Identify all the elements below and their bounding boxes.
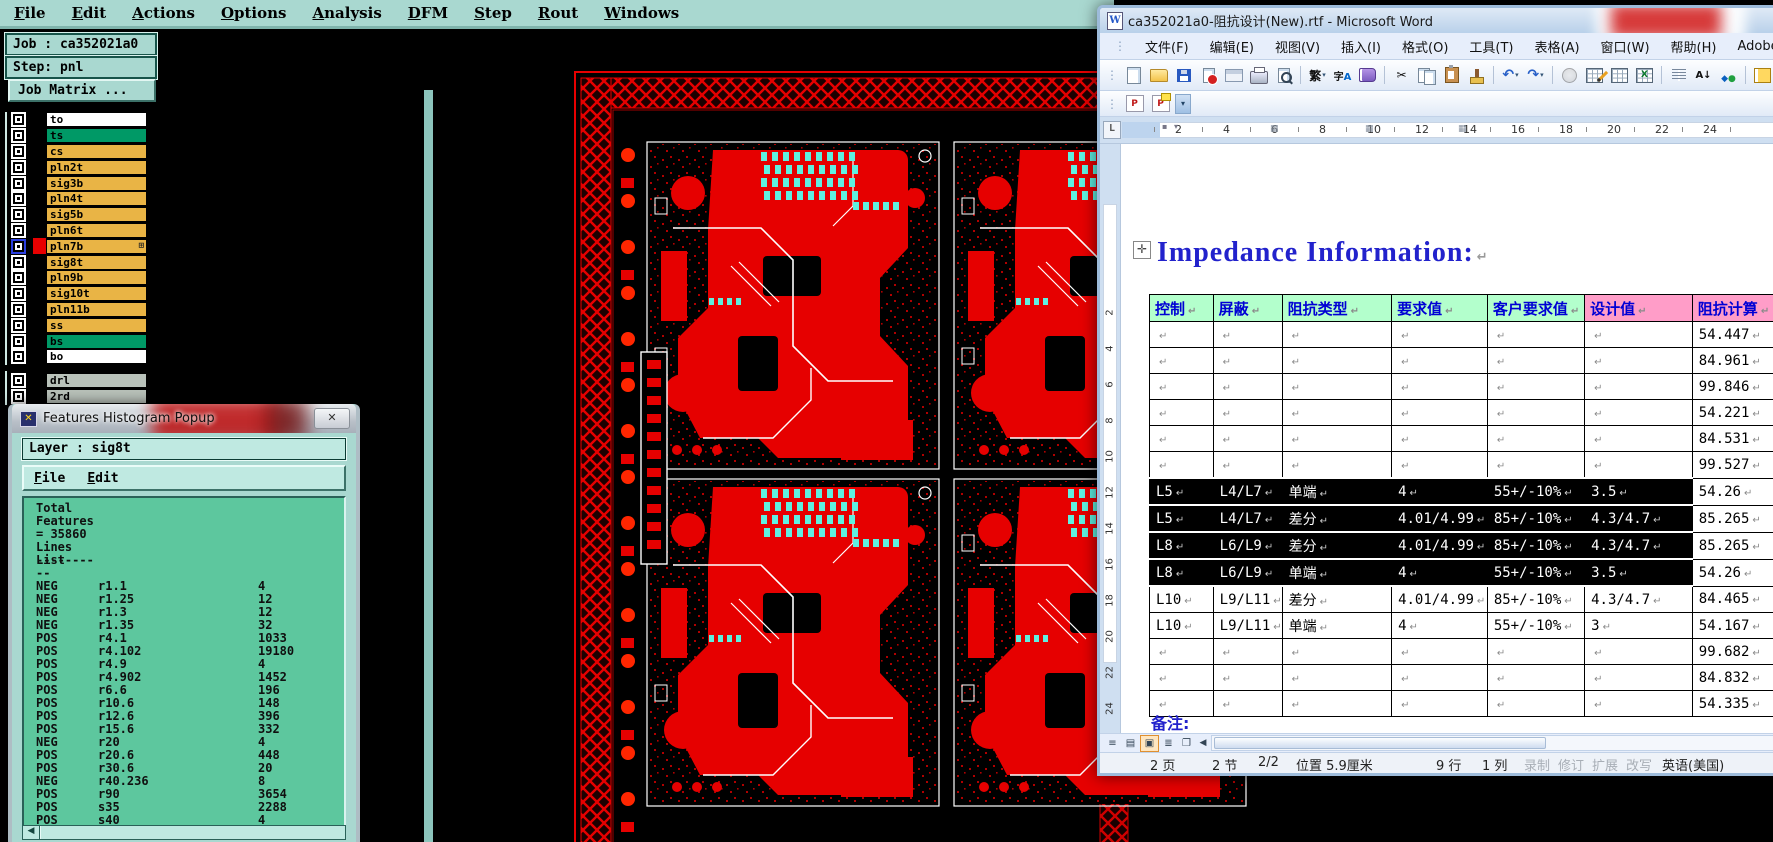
table-cell[interactable]	[1585, 322, 1693, 348]
scroll-left-icon[interactable]: ◀	[23, 826, 40, 839]
table-cell[interactable]	[1487, 374, 1584, 400]
feature-symbol: r40.236	[98, 775, 258, 788]
word-pdf-toolbar: PP▾	[1100, 91, 1773, 117]
histogram-text: ----------	[36, 554, 98, 580]
table-column-marker[interactable]: ▦	[1458, 125, 1467, 134]
hyperlink-icon[interactable]	[1558, 65, 1581, 86]
table-cell[interactable]: 99.846	[1692, 374, 1773, 400]
print-preview-icon[interactable]	[1272, 65, 1295, 86]
layer-color-swatch	[33, 389, 46, 405]
layer-name-cs[interactable]: cs	[46, 144, 147, 159]
convert-and-email-pdf-icon[interactable]: P	[1149, 93, 1172, 114]
table-row[interactable]: 99.846	[1150, 374, 1773, 400]
layer-checkbox-pln7b[interactable]	[11, 239, 26, 254]
layer-checkbox-col	[7, 317, 33, 333]
status-flag-1[interactable]: 修订	[1558, 755, 1584, 774]
ruler-tick	[1586, 127, 1587, 132]
cam-menu-actions[interactable]: Actions	[132, 4, 195, 22]
histogram-row: POSr4.9021452	[24, 671, 344, 684]
table-cell[interactable]	[1150, 665, 1214, 691]
phonetic-guide-icon[interactable]: 字A	[1331, 65, 1354, 86]
table-cell[interactable]	[1282, 639, 1391, 665]
layer-name-ts[interactable]: ts	[46, 128, 147, 143]
table-cell[interactable]: 单端	[1282, 613, 1391, 639]
convert-to-pdf-icon[interactable]: P	[1123, 93, 1146, 114]
word-menu-1[interactable]: 编辑(E)	[1206, 35, 1258, 58]
table-cell[interactable]: 4	[1392, 613, 1488, 639]
word-menu-8[interactable]: 帮助(H)	[1667, 35, 1721, 58]
impedance-table[interactable]: 控制屏蔽阻抗类型要求值客户要求值设计值阻抗计算54.44784.96199.84…	[1149, 294, 1773, 717]
table-cell[interactable]	[1487, 322, 1584, 348]
word-menu-4[interactable]: 格式(O)	[1398, 35, 1452, 58]
layer-row-pln2t[interactable]: pln2t	[7, 159, 147, 175]
layer-row-bs[interactable]: bs	[7, 333, 147, 349]
layer-checkbox-col	[7, 191, 33, 207]
layer-checkbox-col	[7, 349, 33, 365]
vruler-number: 8	[1105, 414, 1116, 428]
toolbar-options-icon[interactable]: ▾	[1175, 94, 1191, 114]
layer-checkbox-col	[7, 238, 33, 254]
table-cell[interactable]: 85.265	[1692, 532, 1773, 559]
table-cell[interactable]	[1392, 426, 1488, 452]
table-cell[interactable]: 84.832	[1692, 665, 1773, 691]
table-cell[interactable]: 3.5	[1585, 478, 1693, 505]
layer-checkbox-col	[7, 112, 33, 128]
table-row[interactable]: L5L4/L7单端455+/-10%3.554.26	[1150, 478, 1773, 505]
table-cell[interactable]: 55+/-10%	[1487, 559, 1584, 586]
print-icon[interactable]	[1247, 65, 1270, 86]
layer-checkbox-drl[interactable]	[11, 373, 26, 388]
table-cell[interactable]: 54.447	[1692, 322, 1773, 348]
table-cell[interactable]: 55+/-10%	[1487, 613, 1584, 639]
layer-name-bs[interactable]: bs	[46, 334, 147, 349]
cam-menu-step[interactable]: Step	[474, 4, 512, 22]
table-cell[interactable]	[1282, 691, 1391, 717]
format-painter-icon[interactable]	[1465, 65, 1488, 86]
layer-name-to[interactable]: to	[46, 112, 147, 127]
histogram-row: POSr4.11033	[24, 632, 344, 645]
ruler-number: 8	[1319, 123, 1326, 136]
histogram-row: POSr4.94	[24, 658, 344, 671]
permission-icon[interactable]	[1197, 65, 1220, 86]
redo-icon[interactable]: ↷▾	[1524, 65, 1547, 86]
word-menu-5[interactable]: 工具(T)	[1465, 35, 1517, 58]
table-cell[interactable]: 84.961	[1692, 348, 1773, 374]
layer-name-pln6t[interactable]: pln6t	[46, 223, 147, 238]
table-cell[interactable]	[1392, 665, 1488, 691]
vruler-number: 22	[1105, 666, 1116, 680]
table-cell[interactable]	[1487, 426, 1584, 452]
table-cell[interactable]: 99.527	[1692, 452, 1773, 479]
status-segment-5: 1 列	[1482, 755, 1507, 774]
table-cell[interactable]: 4.3/4.7	[1585, 505, 1693, 532]
open-icon[interactable]	[1147, 65, 1170, 86]
scrollbar-thumb[interactable]	[40, 826, 345, 839]
table-cell[interactable]	[1282, 452, 1391, 479]
layer-name-bo[interactable]: bo	[46, 349, 147, 364]
table-cell[interactable]	[1585, 665, 1693, 691]
table-cell[interactable]: L6/L9	[1213, 559, 1282, 586]
cam-menu-dfm[interactable]: DFM	[408, 4, 448, 22]
histogram-hscrollbar[interactable]: ◀	[22, 825, 346, 840]
layer-checkbox-col	[7, 302, 33, 318]
histogram-row: POSr15.6332	[24, 723, 344, 736]
histogram-row: NEGr1.312	[24, 606, 344, 619]
indent-marker[interactable]: ▾	[1174, 122, 1178, 131]
table-cell[interactable]: 54.167	[1692, 613, 1773, 639]
table-row[interactable]: 54.221	[1150, 400, 1773, 426]
layer-checkbox-sig10t[interactable]	[11, 286, 26, 301]
word-menu-7[interactable]: 窗口(W)	[1597, 35, 1654, 58]
layer-row-sig8t[interactable]: sig8t	[7, 254, 147, 270]
research-icon[interactable]	[1356, 65, 1379, 86]
histogram-row: POSr12.6396	[24, 710, 344, 723]
table-cell[interactable]: L6/L9	[1213, 532, 1282, 559]
table-cell[interactable]	[1487, 691, 1584, 717]
histogram-list[interactable]: Total Features = 35860Lines List--------…	[22, 496, 346, 840]
status-segment-0: 2 页	[1150, 755, 1175, 774]
table-cell[interactable]	[1213, 348, 1282, 374]
table-cell[interactable]	[1585, 400, 1693, 426]
layer-name-sig3b[interactable]: sig3b	[46, 176, 147, 191]
tables-and-borders-icon[interactable]	[1583, 65, 1606, 86]
word-standard-toolbar: 繁▾字A✂↶▾↷▾XA↓◆●	[1100, 60, 1773, 91]
table-cell[interactable]: 3	[1585, 613, 1693, 639]
layer-name-pln11b[interactable]: pln11b	[46, 302, 147, 317]
table-cell[interactable]: 差分	[1282, 586, 1391, 613]
sort-icon[interactable]: A↓	[1692, 65, 1715, 86]
table-cell[interactable]: 99.682	[1692, 639, 1773, 665]
layer-row-pln7b[interactable]: pln7b⊞	[7, 238, 147, 254]
table-cell[interactable]: 54.335	[1692, 691, 1773, 717]
chinese-convert-icon[interactable]: 繁▾	[1306, 65, 1329, 86]
layer-checkbox-sig5b[interactable]	[11, 207, 26, 222]
table-column-marker[interactable]: ▦	[1365, 125, 1374, 134]
job-label: Job : ca352021a0	[5, 33, 157, 56]
table-cell[interactable]	[1392, 639, 1488, 665]
layer-name-ss[interactable]: ss	[46, 318, 147, 333]
toolbar-separator	[1552, 66, 1553, 84]
layer-name-pln9b[interactable]: pln9b	[46, 270, 147, 285]
table-row[interactable]: L5L4/L7差分4.01/4.9985+/-10%4.3/4.785.265	[1150, 505, 1773, 532]
table-cell[interactable]: 4.3/4.7	[1585, 532, 1693, 559]
table-cell[interactable]: 4	[1392, 559, 1488, 586]
table-row[interactable]: 99.682	[1150, 639, 1773, 665]
table-cell[interactable]	[1392, 374, 1488, 400]
status-flag-3[interactable]: 改写	[1626, 755, 1652, 774]
table-cell[interactable]	[1213, 452, 1282, 479]
layer-checkbox-cs[interactable]	[11, 144, 26, 159]
insert-table-icon[interactable]	[1608, 65, 1631, 86]
table-move-handle[interactable]: ✛	[1133, 241, 1151, 259]
layer-checkbox-col	[7, 373, 33, 389]
table-cell[interactable]	[1585, 374, 1693, 400]
table-cell[interactable]: 4.01/4.99	[1392, 532, 1488, 559]
table-cell[interactable]	[1150, 374, 1214, 400]
layer-name-pln7b[interactable]: pln7b⊞	[46, 239, 147, 254]
table-cell[interactable]: L4/L7	[1213, 505, 1282, 532]
layer-row-ts[interactable]: ts	[7, 128, 147, 144]
layer-row-bo[interactable]: bo	[7, 349, 147, 365]
table-cell[interactable]: 54.26	[1692, 478, 1773, 505]
histogram-row: POSr20.6448	[24, 749, 344, 762]
new-icon[interactable]	[1122, 65, 1145, 86]
histogram-menu-edit[interactable]: Edit	[87, 471, 118, 486]
layer-row-sig3b[interactable]: sig3b	[7, 175, 147, 191]
layer-checkbox-ss[interactable]	[11, 318, 26, 333]
table-cell[interactable]: 单端	[1282, 559, 1391, 586]
layer-checkbox-col	[7, 207, 33, 223]
table-cell[interactable]: L4/L7	[1213, 478, 1282, 505]
table-cell[interactable]: L10	[1150, 586, 1214, 613]
reading-layout-view-button[interactable]: ❐	[1178, 736, 1195, 751]
ruler-tick	[1682, 127, 1683, 132]
vertical-ruler[interactable]: 24681012141618202224	[1100, 144, 1121, 733]
table-cell[interactable]	[1282, 665, 1391, 691]
scroll-left-icon[interactable]: ◀	[1196, 738, 1210, 748]
table-cell[interactable]	[1282, 374, 1391, 400]
table-cell[interactable]	[1213, 691, 1282, 717]
table-row[interactable]: 84.531	[1150, 426, 1773, 452]
layer-checkbox-bo[interactable]	[11, 349, 26, 364]
ruler-tick	[1250, 127, 1251, 132]
layer-checkbox-pln4t[interactable]	[11, 191, 26, 206]
table-cell[interactable]: L10	[1150, 613, 1214, 639]
popup-window-icon: ✕	[20, 411, 37, 427]
layer-row-pln9b[interactable]: pln9b	[7, 270, 147, 286]
table-header-row: 控制屏蔽阻抗类型要求值客户要求值设计值阻抗计算	[1150, 295, 1773, 322]
table-cell[interactable]: 85+/-10%	[1487, 505, 1584, 532]
layer-name-sig8t[interactable]: sig8t	[46, 255, 147, 270]
table-cell[interactable]	[1487, 348, 1584, 374]
table-cell[interactable]	[1487, 452, 1584, 479]
table-cell[interactable]	[1392, 400, 1488, 426]
word-menu-6[interactable]: 表格(A)	[1531, 35, 1584, 58]
cam-menu-file[interactable]: File	[14, 4, 46, 22]
cam-menu-options[interactable]: Options	[221, 4, 287, 22]
table-cell[interactable]: 85+/-10%	[1487, 586, 1584, 613]
layer-row-2rd[interactable]: 2rd	[7, 389, 147, 405]
step-label: Step: pnl	[5, 56, 157, 79]
layer-checkbox-col	[7, 175, 33, 191]
layer-checkbox-sig3b[interactable]	[11, 176, 26, 191]
table-row[interactable]: 54.447	[1150, 322, 1773, 348]
ruler-number: 4	[1223, 123, 1230, 136]
layer-checkbox-pln9b[interactable]	[11, 270, 26, 285]
table-cell[interactable]	[1585, 452, 1693, 479]
layer-row-pln6t[interactable]: pln6t	[7, 223, 147, 239]
layer-name-pln4t[interactable]: pln4t	[46, 191, 147, 206]
histogram-menu-file[interactable]: File	[34, 471, 65, 486]
cam-menu-rout[interactable]: Rout	[538, 4, 578, 22]
cam-menu-analysis[interactable]: Analysis	[313, 4, 382, 22]
layer-row-sig5b[interactable]: sig5b	[7, 207, 147, 223]
table-cell[interactable]: 4.01/4.99	[1392, 505, 1488, 532]
table-cell[interactable]: L5	[1150, 478, 1214, 505]
ruler-number: 20	[1607, 123, 1621, 136]
layer-checkbox-pln2t[interactable]	[11, 160, 26, 175]
layer-row-to[interactable]: to	[7, 112, 147, 128]
layer-name-drl[interactable]: drl	[46, 373, 147, 388]
document-page[interactable]: ✛ Impedance Information: 控制屏蔽阻抗类型要求值客户要求…	[1121, 144, 1773, 733]
table-row[interactable]: L10L9/L11差分4.01/4.9985+/-10%4.3/4.784.46…	[1150, 586, 1773, 613]
job-matrix-button[interactable]: Job Matrix ...	[8, 79, 156, 102]
copy-icon[interactable]	[1415, 65, 1438, 86]
layer-color-swatch	[33, 286, 46, 302]
layer-row-sig10t[interactable]: sig10t	[7, 286, 147, 302]
table-cell[interactable]: 85+/-10%	[1487, 532, 1584, 559]
hscroll-track[interactable]	[1211, 735, 1773, 751]
table-cell[interactable]	[1150, 426, 1214, 452]
table-cell[interactable]	[1392, 452, 1488, 479]
paste-icon[interactable]	[1440, 65, 1463, 86]
table-header-0: 控制	[1150, 295, 1214, 322]
layer-name-2rd[interactable]: 2rd	[46, 389, 147, 404]
popup-titlebar[interactable]: ✕ Features Histogram Popup ✕	[12, 404, 356, 433]
save-icon[interactable]	[1172, 65, 1195, 86]
table-cell[interactable]: 4	[1392, 478, 1488, 505]
layer-row-cs[interactable]: cs	[7, 144, 147, 160]
table-row[interactable]: L8L6/L9单端455+/-10%3.554.26	[1150, 559, 1773, 586]
tab-selector[interactable]: L	[1103, 121, 1121, 139]
layer-checkbox-sig8t[interactable]	[11, 255, 26, 270]
table-cell[interactable]: L8	[1150, 559, 1214, 586]
status-flag-0[interactable]: 录制	[1524, 755, 1550, 774]
table-cell[interactable]	[1282, 400, 1391, 426]
table-cell[interactable]	[1150, 348, 1214, 374]
close-icon[interactable]: ✕	[314, 408, 350, 429]
table-cell[interactable]	[1282, 348, 1391, 374]
layer-row-pln11b[interactable]: pln11b	[7, 302, 147, 318]
table-cell[interactable]	[1213, 322, 1282, 348]
table-cell[interactable]	[1213, 665, 1282, 691]
layer-checkbox-ts[interactable]	[11, 128, 26, 143]
status-flag-2[interactable]: 扩展	[1592, 755, 1618, 774]
table-cell[interactable]	[1282, 322, 1391, 348]
table-cell[interactable]: 54.221	[1692, 400, 1773, 426]
drawing-icon[interactable]: ◆●	[1717, 65, 1740, 86]
normal-view-button[interactable]: ≡	[1104, 736, 1121, 751]
layer-name-sig10t[interactable]: sig10t	[46, 286, 147, 301]
table-row[interactable]: 84.961	[1150, 348, 1773, 374]
table-cell[interactable]: 单端	[1282, 478, 1391, 505]
cam-menu-windows[interactable]: Windows	[604, 4, 679, 22]
table-row[interactable]: 84.832	[1150, 665, 1773, 691]
layer-row-ss[interactable]: ss	[7, 317, 147, 333]
columns-icon[interactable]	[1667, 65, 1690, 86]
table-header-3: 要求值	[1392, 295, 1488, 322]
layer-name-sig5b[interactable]: sig5b	[46, 207, 147, 222]
mail-icon[interactable]	[1222, 65, 1245, 86]
cut-icon[interactable]: ✂	[1390, 65, 1413, 86]
table-cell[interactable]	[1392, 348, 1488, 374]
print-layout-view-button[interactable]: ▣	[1140, 735, 1159, 752]
table-cell[interactable]	[1487, 400, 1584, 426]
layer-checkbox-2rd[interactable]	[11, 389, 26, 404]
table-cell[interactable]: L5	[1150, 505, 1214, 532]
toolbar-separator	[1745, 66, 1746, 84]
ruler-number: 12	[1415, 123, 1429, 136]
table-cell[interactable]	[1585, 426, 1693, 452]
table-cell[interactable]: 差分	[1282, 532, 1391, 559]
table-cell[interactable]: L8	[1150, 532, 1214, 559]
table-cell[interactable]	[1213, 426, 1282, 452]
undo-icon[interactable]: ↶▾	[1499, 65, 1522, 86]
table-cell[interactable]: 84.465	[1692, 586, 1773, 613]
table-cell[interactable]	[1585, 691, 1693, 717]
layer-checkbox-bs[interactable]	[11, 334, 26, 349]
table-cell[interactable]: 54.26	[1692, 559, 1773, 586]
table-cell[interactable]: 85.265	[1692, 505, 1773, 532]
layer-row-pln4t[interactable]: pln4t	[7, 191, 147, 207]
word-title: ca352021a0-阻抗设计(New).rtf - Microsoft Wor…	[1128, 11, 1433, 30]
table-cell[interactable]	[1585, 348, 1693, 374]
table-cell[interactable]	[1392, 322, 1488, 348]
table-row[interactable]: L10L9/L11单端455+/-10%354.167	[1150, 613, 1773, 639]
table-cell[interactable]	[1150, 452, 1214, 479]
table-cell[interactable]: 4.3/4.7	[1585, 586, 1693, 613]
web-layout-view-button[interactable]: ▤	[1122, 736, 1139, 751]
table-cell[interactable]	[1392, 691, 1488, 717]
layer-checkbox-col	[7, 270, 33, 286]
table-cell[interactable]	[1150, 400, 1214, 426]
frontline-logo-glass	[1611, 8, 1721, 33]
table-cell[interactable]	[1150, 639, 1214, 665]
table-cell[interactable]: 3.5	[1585, 559, 1693, 586]
table-cell[interactable]	[1282, 426, 1391, 452]
insert-excel-icon[interactable]: X	[1633, 65, 1656, 86]
word-menu-2[interactable]: 视图(V)	[1271, 35, 1324, 58]
table-cell[interactable]: L9/L11	[1213, 613, 1282, 639]
table-cell[interactable]	[1213, 400, 1282, 426]
table-cell[interactable]: 差分	[1282, 505, 1391, 532]
horizontal-ruler[interactable]: L 24681012141618202224▾▪▦▦▦	[1100, 117, 1773, 144]
table-cell[interactable]	[1585, 639, 1693, 665]
layer-checkbox-col	[7, 254, 33, 270]
outline-view-button[interactable]: ≣	[1160, 736, 1177, 751]
word-menu-9[interactable]: Adobe PDF(B)	[1733, 37, 1773, 56]
table-cell[interactable]	[1487, 639, 1584, 665]
table-column-marker[interactable]: ▦	[1270, 125, 1279, 134]
layer-row-drl[interactable]: drl	[7, 373, 147, 389]
table-row[interactable]: L8L6/L9差分4.01/4.9985+/-10%4.3/4.785.265	[1150, 532, 1773, 559]
cam-menu-edit[interactable]: Edit	[72, 4, 107, 22]
table-cell[interactable]	[1487, 665, 1584, 691]
vruler-number: 14	[1105, 522, 1116, 536]
word-titlebar[interactable]: W ca352021a0-阻抗设计(New).rtf - Microsoft W…	[1100, 8, 1773, 33]
table-cell[interactable]: L9/L11	[1213, 586, 1282, 613]
table-row[interactable]: 99.527	[1150, 452, 1773, 479]
table-cell[interactable]: 55+/-10%	[1487, 478, 1584, 505]
table-cell[interactable]: 4.01/4.99	[1392, 586, 1488, 613]
word-menu-0[interactable]: 文件(F)	[1141, 35, 1193, 58]
hscroll-thumb[interactable]	[1214, 737, 1546, 749]
vruler-number: 24	[1105, 702, 1116, 716]
table-row[interactable]: 54.335	[1150, 691, 1773, 717]
table-cell[interactable]	[1150, 322, 1214, 348]
table-cell[interactable]: 84.531	[1692, 426, 1773, 452]
indent-marker[interactable]: ▪	[1162, 122, 1167, 131]
table-cell[interactable]	[1213, 374, 1282, 400]
layer-checkbox-pln11b[interactable]	[11, 302, 26, 317]
table-cell[interactable]	[1213, 639, 1282, 665]
layer-checkbox-pln6t[interactable]	[11, 223, 26, 238]
layer-checkbox-to[interactable]	[11, 112, 26, 127]
word-menu-3[interactable]: 插入(I)	[1337, 35, 1385, 58]
document-map-icon[interactable]	[1751, 65, 1773, 86]
status-segment-4: 9 行	[1436, 755, 1461, 774]
layer-name-pln2t[interactable]: pln2t	[46, 160, 147, 175]
